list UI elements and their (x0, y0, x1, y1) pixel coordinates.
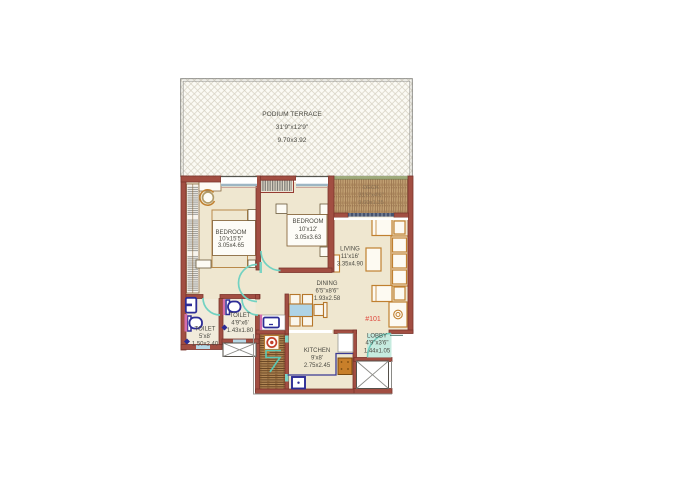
svg-text:5'x8': 5'x8' (199, 334, 211, 340)
svg-text:9.70x3.92: 9.70x3.92 (278, 137, 307, 144)
svg-text:3.35x4.90: 3.35x4.90 (337, 262, 364, 268)
svg-text:9.60x1.35: 9.60x1.35 (358, 200, 383, 206)
svg-text:6'5"x8'6": 6'5"x8'6" (316, 289, 339, 295)
svg-text:BEDROOM: BEDROOM (215, 230, 246, 236)
svg-text:3.05x4.65: 3.05x4.65 (218, 243, 245, 249)
svg-text:#101: #101 (365, 316, 381, 323)
svg-text:KITCHEN: KITCHEN (304, 348, 330, 354)
svg-text:1.44x1.05: 1.44x1.05 (364, 349, 391, 355)
svg-text:3.05x3.63: 3.05x3.63 (295, 235, 322, 241)
svg-text:31'6"x4'6": 31'6"x4'6" (358, 193, 383, 199)
svg-text:1.93x2.58: 1.93x2.58 (314, 296, 341, 302)
svg-text:4'9"x3'6": 4'9"x3'6" (366, 341, 389, 347)
svg-text:4'9"x6': 4'9"x6' (231, 321, 248, 327)
svg-text:BEDROOM: BEDROOM (292, 219, 323, 225)
svg-text:TOILET: TOILET (195, 327, 216, 333)
svg-text:DECK: DECK (363, 185, 379, 191)
svg-text:PODIUM TERRACE: PODIUM TERRACE (262, 111, 322, 118)
svg-text:2.75x2.45: 2.75x2.45 (304, 363, 331, 369)
svg-text:10'x12': 10'x12' (299, 227, 318, 233)
svg-text:1.50x2.40: 1.50x2.40 (192, 341, 219, 347)
svg-text:LOBBY: LOBBY (367, 334, 387, 340)
svg-text:9'x8': 9'x8' (311, 356, 323, 362)
svg-text:TOILET: TOILET (230, 313, 251, 319)
svg-text:DINING: DINING (317, 281, 338, 287)
svg-text:31'9"x12'9": 31'9"x12'9" (276, 124, 309, 131)
svg-text:LIVING: LIVING (340, 247, 360, 253)
svg-text:10'x15'5": 10'x15'5" (219, 237, 243, 243)
svg-text:1.43x1.80: 1.43x1.80 (227, 328, 254, 334)
svg-text:11'x16': 11'x16' (341, 254, 359, 260)
